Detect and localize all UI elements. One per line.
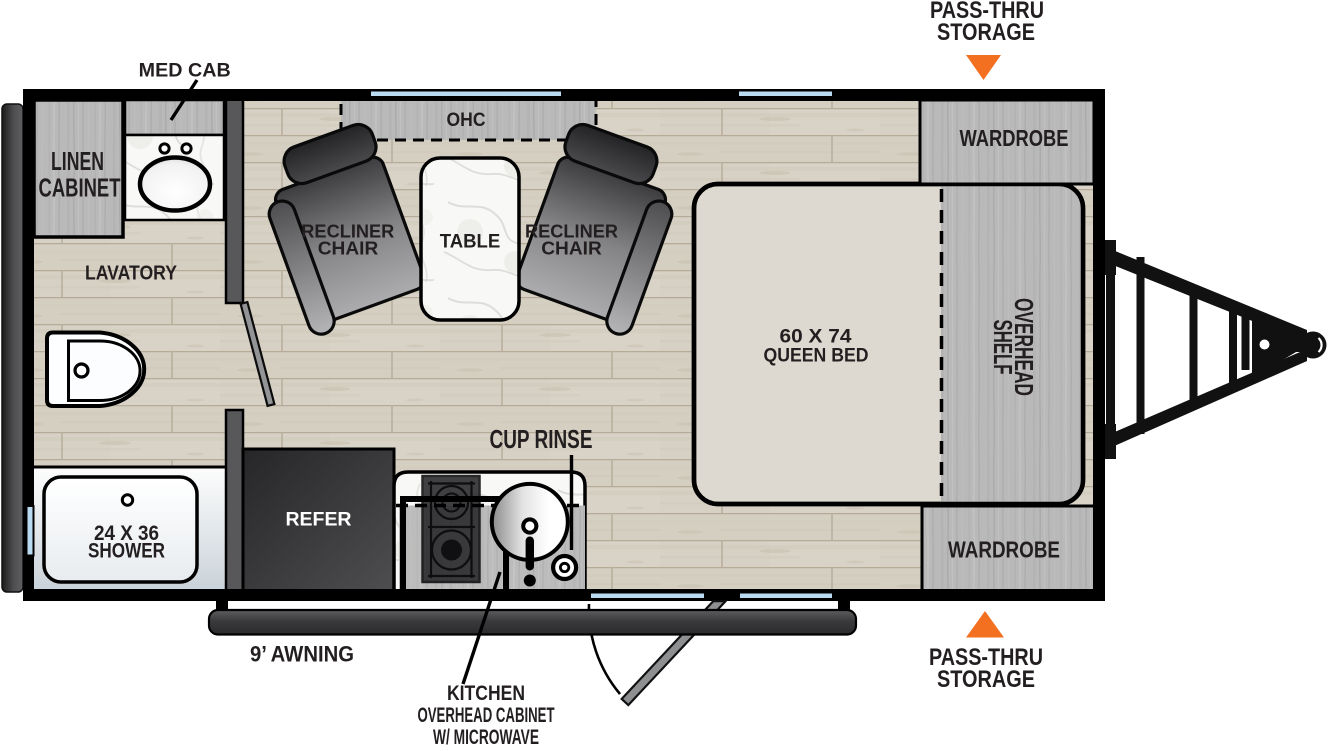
svg-text:LINEN: LINEN — [51, 146, 104, 176]
svg-text:CUP RINSE: CUP RINSE — [490, 424, 593, 454]
svg-text:STORAGE: STORAGE — [937, 666, 1035, 693]
svg-text:REFER: REFER — [286, 509, 352, 531]
svg-text:SHOWER: SHOWER — [88, 540, 165, 563]
svg-text:STORAGE: STORAGE — [937, 19, 1035, 46]
svg-text:OHC: OHC — [447, 109, 486, 131]
svg-text:CHAIR: CHAIR — [318, 239, 379, 259]
svg-text:CHAIR: CHAIR — [541, 239, 602, 259]
svg-text:LAVATORY: LAVATORY — [85, 263, 178, 285]
svg-text:CABINET: CABINET — [39, 173, 121, 203]
svg-text:W/ MICROWAVE: W/ MICROWAVE — [433, 726, 539, 746]
svg-text:OVERHEAD CABINET: OVERHEAD CABINET — [418, 704, 555, 727]
svg-text:WARDROBE: WARDROBE — [948, 537, 1060, 563]
svg-text:WARDROBE: WARDROBE — [960, 125, 1069, 151]
svg-text:9’ AWNING: 9’ AWNING — [250, 642, 354, 667]
svg-text:KITCHEN: KITCHEN — [447, 682, 525, 705]
svg-text:QUEEN BED: QUEEN BED — [764, 345, 869, 367]
svg-text:SHELF: SHELF — [988, 320, 1018, 375]
svg-text:MED CAB: MED CAB — [139, 60, 231, 82]
svg-text:TABLE: TABLE — [440, 232, 501, 253]
